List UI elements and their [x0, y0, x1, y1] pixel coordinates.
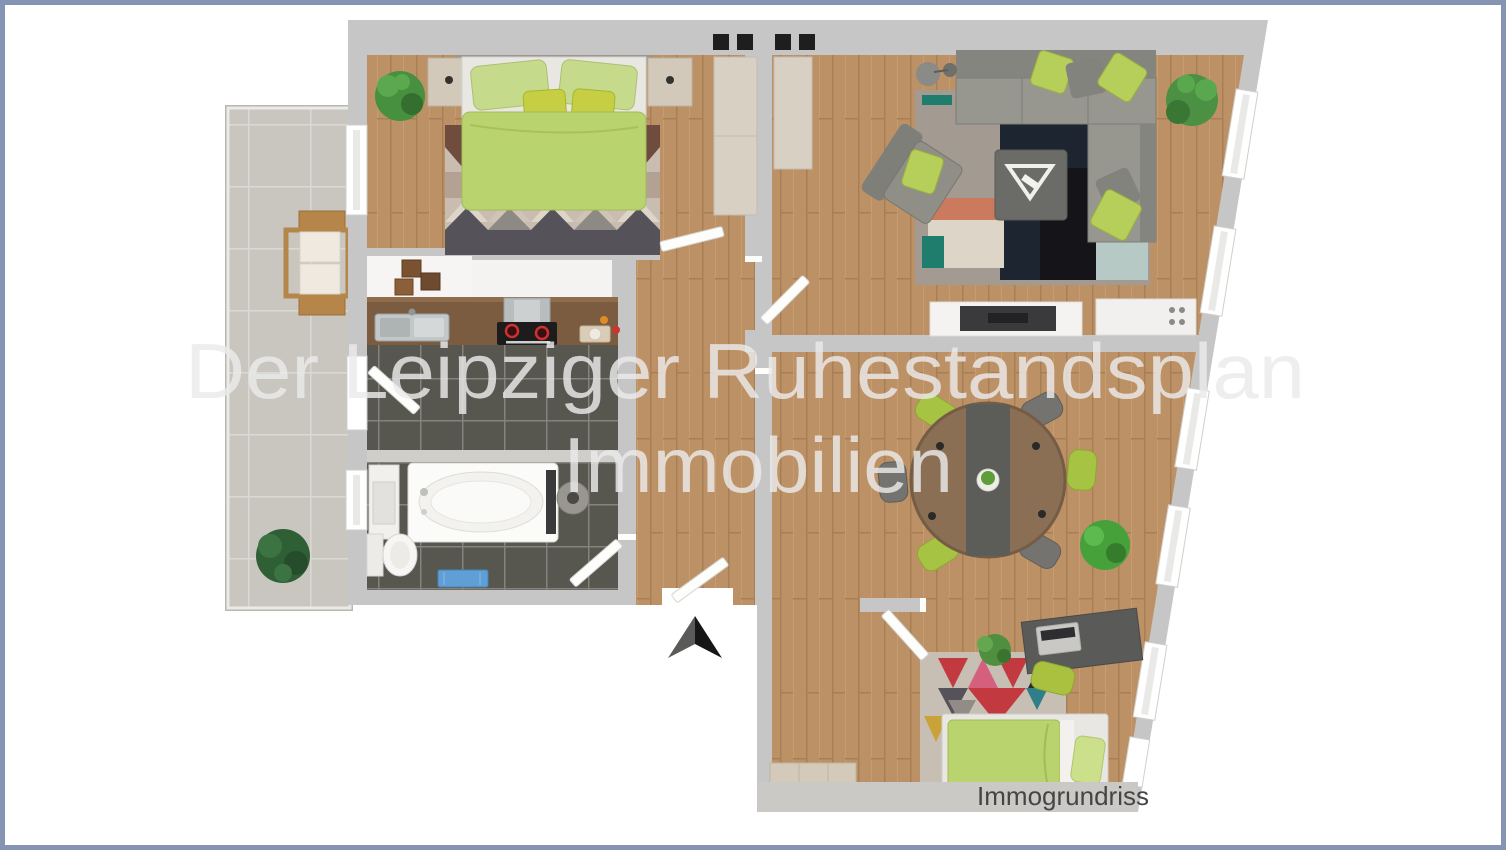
toilet [367, 534, 417, 576]
range-hood [504, 298, 550, 326]
dining-chair-green-2 [1066, 449, 1097, 491]
footer-label: Immogrundriss [977, 781, 1149, 811]
double-bed [462, 57, 646, 210]
bedroom-sideboard [367, 256, 472, 298]
bed-duvet [462, 112, 646, 210]
bedroom-plant [375, 71, 425, 121]
vanity [369, 465, 399, 539]
bathtub [408, 463, 558, 542]
nightstand-right [648, 58, 692, 106]
coffee-table [995, 150, 1067, 220]
watermark-line-1: Der Leipziger Ruhestandsplan [185, 327, 1305, 415]
balcony-plant [256, 529, 310, 583]
floor-plan-image: Immogrundriss Der Leipziger Ruhestandspl… [0, 0, 1506, 850]
bath-mat [438, 570, 488, 587]
watermark-line-2: Immobilien [563, 421, 953, 509]
north-arrow-icon [668, 616, 722, 658]
dining-plant [1080, 520, 1130, 570]
bathroom-window [346, 470, 367, 530]
living-plant [1166, 74, 1218, 126]
bedroom-window [346, 125, 367, 215]
floor-plan-svg: Immogrundriss Der Leipziger Ruhestandspl… [0, 0, 1506, 850]
hallway-floor [636, 228, 755, 605]
entry-wardrobe [774, 57, 812, 169]
